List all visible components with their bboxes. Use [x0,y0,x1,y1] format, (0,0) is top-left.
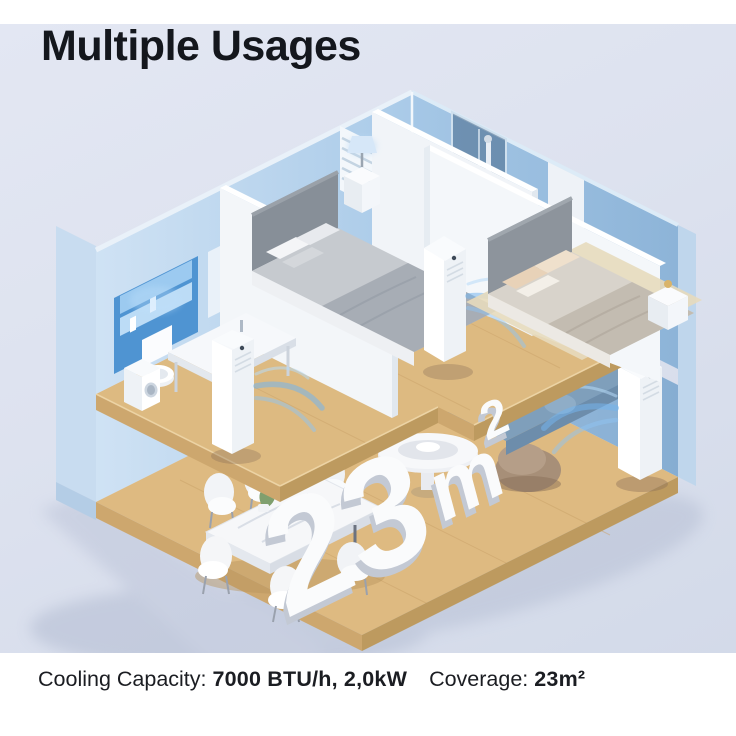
cooling-capacity-value: 7000 BTU/h, 2,0kW [212,667,407,691]
isometric-house-illustration: 23 m 2 23 m 2 [0,0,736,736]
nightstand-lamp [344,136,380,213]
spec-footer: Cooling Capacity: 7000 BTU/h, 2,0kWCover… [0,653,736,736]
washing-machine [124,359,160,411]
left-wall-section [56,226,96,502]
cooling-capacity-label: Cooling Capacity: [38,667,212,691]
spec-line: Cooling Capacity: 7000 BTU/h, 2,0kWCover… [38,667,585,692]
product-infographic: Multiple Usages [0,0,736,736]
coverage-value: 23m² [534,667,585,691]
right-wall-section [678,225,696,486]
coverage-label: Coverage: [429,667,534,691]
